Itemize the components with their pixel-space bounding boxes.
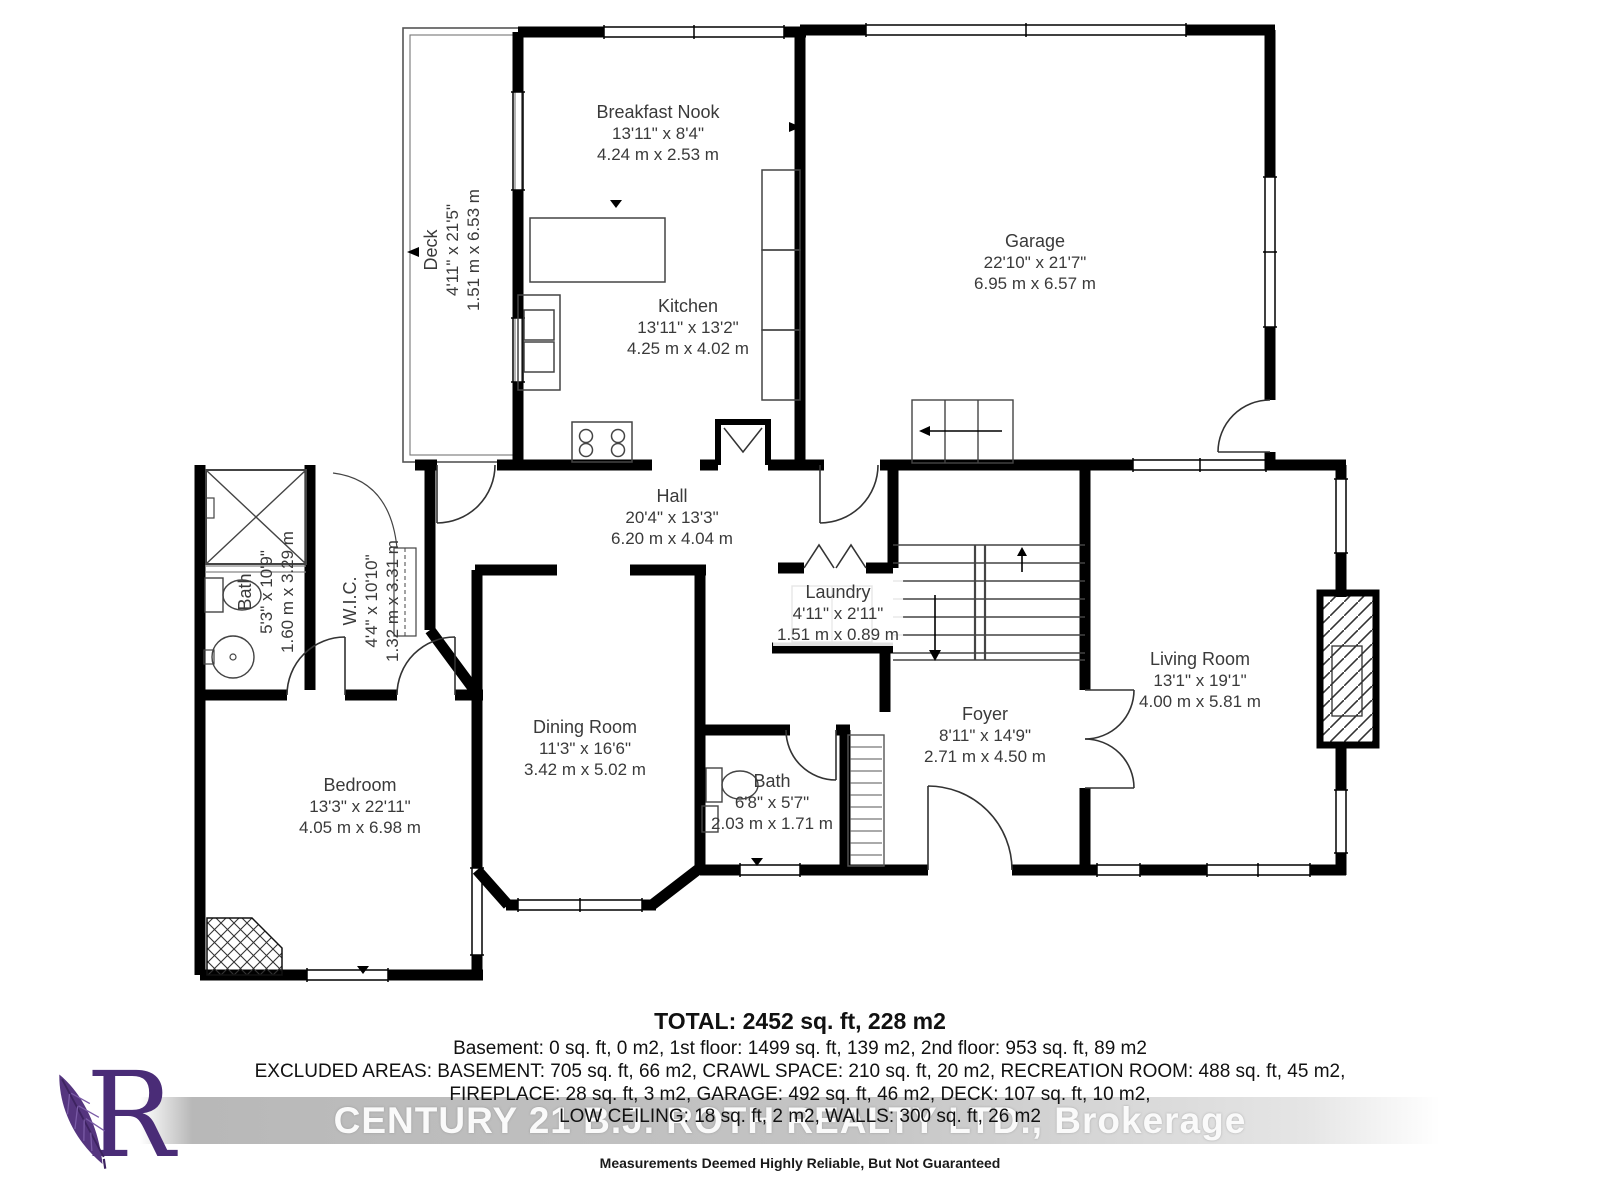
- stairs: [893, 545, 1085, 660]
- room-dim-metric: 1.51 m x 0.89 m: [777, 624, 899, 645]
- floorplan-page: Breakfast Nook 13'11" x 8'4" 4.24 m x 2.…: [0, 0, 1600, 1200]
- room-label-dining-room: Dining Room 11'3" x 16'6" 3.42 m x 5.02 …: [524, 716, 646, 780]
- room-label-bath-small: Bath 6'8" x 5'7" 2.03 m x 1.71 m: [711, 770, 833, 834]
- room-label-breakfast-nook: Breakfast Nook 13'11" x 8'4" 4.24 m x 2.…: [596, 101, 719, 165]
- room-name: Foyer: [924, 703, 1046, 725]
- windows: [307, 23, 1348, 982]
- bedroom-hatch-area: [207, 918, 282, 975]
- room-dim-imperial: 20'4" x 13'3": [611, 507, 733, 528]
- room-dim-metric: 2.03 m x 1.71 m: [711, 813, 833, 834]
- room-dim-imperial: 5'3" x 10'9": [256, 531, 277, 653]
- room-name: Bath: [234, 531, 256, 653]
- feather-icon: [46, 1064, 124, 1174]
- room-dim-metric: 1.32 m x 3.31 m: [382, 540, 403, 662]
- room-dim-metric: 1.51 m x 6.53 m: [463, 189, 484, 311]
- room-dim-imperial: 11'3" x 16'6": [524, 738, 646, 759]
- room-label-kitchen: Kitchen 13'11" x 13'2" 4.25 m x 4.02 m: [627, 295, 749, 359]
- room-dim-imperial: 13'3" x 22'11": [299, 796, 421, 817]
- room-name: Bedroom: [299, 774, 421, 796]
- room-label-foyer: Foyer 8'11" x 14'9" 2.71 m x 4.50 m: [924, 703, 1046, 767]
- room-name: Garage: [974, 230, 1096, 252]
- foyer-closet: [848, 735, 884, 866]
- room-label-wic: W.I.C. 4'4" x 10'10" 1.32 m x 3.31 m: [339, 540, 403, 662]
- room-dim-metric: 4.05 m x 6.98 m: [299, 817, 421, 838]
- fireplace: [1320, 593, 1376, 745]
- room-label-bath-main: Bath 5'3" x 10'9" 1.60 m x 3.29 m: [234, 531, 298, 653]
- room-dim-imperial: 8'11" x 14'9": [924, 725, 1046, 746]
- room-name: Kitchen: [627, 295, 749, 317]
- room-dim-metric: 1.60 m x 3.29 m: [277, 531, 298, 653]
- garage-steps-arrow: [919, 426, 930, 436]
- summary-line-4: LOW CEILING: 18 sq. ft, 2 m2, WALLS: 300…: [0, 1106, 1600, 1128]
- stairs-up-arrow: [1017, 547, 1027, 556]
- brand-logo: R: [52, 1048, 182, 1193]
- room-name: Living Room: [1139, 648, 1261, 670]
- summary-line-3: FIREPLACE: 28 sq. ft, 3 m2, GARAGE: 492 …: [0, 1084, 1600, 1106]
- room-name: W.I.C.: [339, 540, 361, 662]
- room-dim-metric: 4.24 m x 2.53 m: [596, 144, 719, 165]
- room-dim-imperial: 13'1" x 19'1": [1139, 670, 1261, 691]
- room-label-garage: Garage 22'10" x 21'7" 6.95 m x 6.57 m: [974, 230, 1096, 294]
- room-name: Hall: [611, 485, 733, 507]
- room-dim-metric: 4.25 m x 4.02 m: [627, 338, 749, 359]
- room-label-hall: Hall 20'4" x 13'3" 6.20 m x 4.04 m: [611, 485, 733, 549]
- room-dim-metric: 6.20 m x 4.04 m: [611, 528, 733, 549]
- disclaimer-text: Measurements Deemed Highly Reliable, But…: [0, 1155, 1600, 1171]
- pantry-nook: [718, 422, 768, 465]
- room-dim-imperial: 6'8" x 5'7": [711, 792, 833, 813]
- room-name: Breakfast Nook: [596, 101, 719, 123]
- room-dim-imperial: 13'11" x 8'4": [596, 123, 719, 144]
- room-name: Deck: [420, 189, 442, 311]
- room-dim-imperial: 13'11" x 13'2": [627, 317, 749, 338]
- room-label-bedroom: Bedroom 13'3" x 22'11" 4.05 m x 6.98 m: [299, 774, 421, 838]
- room-name: Dining Room: [524, 716, 646, 738]
- summary-line-1: Basement: 0 sq. ft, 0 m2, 1st floor: 149…: [0, 1038, 1600, 1060]
- total-area-line: TOTAL: 2452 sq. ft, 228 m2: [0, 1008, 1600, 1035]
- room-dim-imperial: 22'10" x 21'7": [974, 252, 1096, 273]
- room-label-laundry: Laundry 4'11" x 2'11" 1.51 m x 0.89 m: [773, 580, 903, 646]
- room-dim-imperial: 4'11" x 21'5": [442, 189, 463, 311]
- room-dim-metric: 2.71 m x 4.50 m: [924, 746, 1046, 767]
- room-label-living-room: Living Room 13'1" x 19'1" 4.00 m x 5.81 …: [1139, 648, 1261, 712]
- room-dim-imperial: 4'4" x 10'10": [361, 540, 382, 662]
- room-dim-imperial: 4'11" x 2'11": [777, 603, 899, 624]
- room-name: Laundry: [777, 581, 899, 603]
- room-dim-metric: 3.42 m x 5.02 m: [524, 759, 646, 780]
- room-dim-metric: 4.00 m x 5.81 m: [1139, 691, 1261, 712]
- room-name: Bath: [711, 770, 833, 792]
- room-label-deck: Deck 4'11" x 21'5" 1.51 m x 6.53 m: [420, 189, 484, 311]
- room-dim-metric: 6.95 m x 6.57 m: [974, 273, 1096, 294]
- summary-line-2: EXCLUDED AREAS: BASEMENT: 705 sq. ft, 66…: [0, 1061, 1600, 1083]
